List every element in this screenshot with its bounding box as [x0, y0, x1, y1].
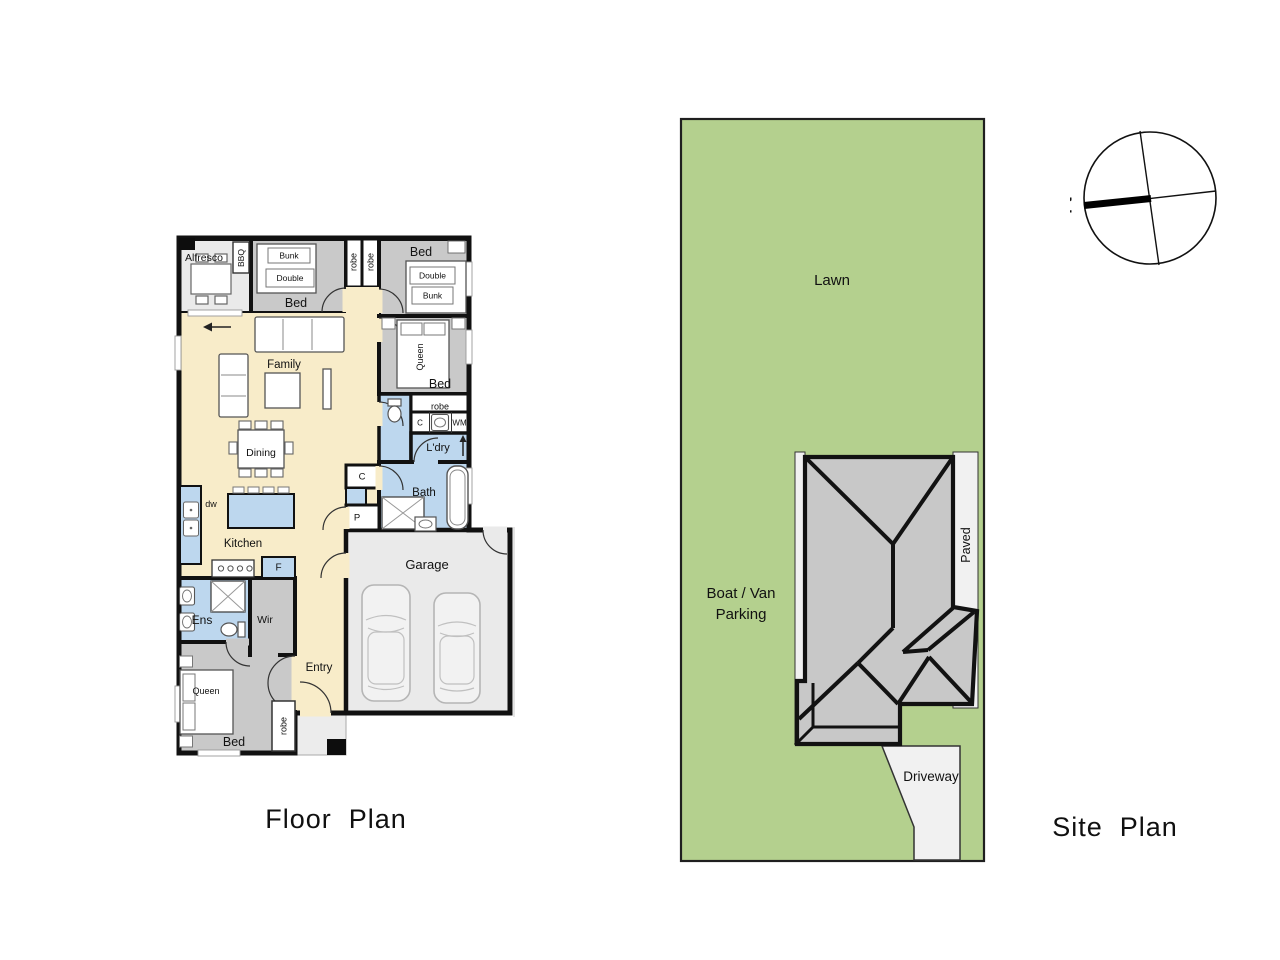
label-bunk: Bunk	[279, 251, 299, 261]
label-queen: Queen	[415, 343, 425, 370]
pantry	[346, 505, 379, 530]
label-bed3: Bed	[429, 377, 451, 391]
label-bed2: Bed	[285, 296, 307, 310]
label-fridge: F	[275, 563, 281, 574]
pillow	[183, 703, 195, 730]
label-hall-c: C	[359, 472, 366, 483]
label-kitchen: Kitchen	[224, 538, 262, 550]
label-bunk: Bunk	[423, 291, 443, 301]
house-footprint	[795, 457, 977, 745]
label-wm: WM	[452, 419, 467, 428]
toilet-tank	[388, 399, 401, 406]
bath-sink	[415, 517, 436, 531]
label-master-robe: robe	[279, 717, 289, 735]
label-bbq: BBQ	[236, 249, 246, 267]
hall-bench	[346, 488, 366, 505]
compass: N	[1070, 118, 1230, 278]
corner-post	[179, 238, 195, 250]
label-lawn: Lawn	[814, 272, 850, 289]
window	[448, 241, 465, 253]
label-parking: Parking	[716, 606, 767, 623]
nightstand	[452, 318, 465, 329]
toilet-tank	[238, 622, 245, 637]
label-robe-b: robe	[366, 253, 376, 271]
label-boat-van: Boat / Van	[707, 585, 776, 602]
label-master-bed: Bed	[223, 735, 245, 749]
label-double: Double	[277, 273, 304, 283]
pillow	[401, 323, 422, 335]
floor-plan-title: Floor Plan	[216, 804, 456, 835]
site-plan-title: Site Plan	[995, 812, 1235, 843]
sliding-door	[188, 310, 242, 316]
label-master-queen: Queen	[192, 686, 219, 696]
toilet	[221, 623, 237, 636]
window	[175, 336, 181, 370]
north-label: N	[1070, 195, 1077, 215]
car	[434, 593, 480, 703]
label-alfresco: Alfresco	[185, 252, 223, 264]
label-laundry: L'dry	[426, 442, 450, 454]
label-double: Double	[419, 271, 446, 281]
site-plan-drawing: Lawn Boat / Van Parking Paved Driveway	[670, 110, 1000, 870]
label-cupboard-c: C	[417, 419, 423, 428]
bed1-furniture	[406, 261, 466, 313]
label-bath: Bath	[412, 487, 436, 499]
sofa	[255, 317, 344, 352]
nightstand	[382, 318, 395, 329]
label-ensuite: Ens	[192, 613, 213, 627]
nightstand	[180, 656, 193, 667]
tv-unit	[323, 369, 331, 409]
label-robe3: robe	[431, 402, 449, 412]
label-garage: Garage	[405, 557, 448, 572]
toilet	[388, 406, 401, 422]
label-dining: Dining	[246, 447, 276, 459]
label-entry: Entry	[306, 662, 333, 674]
page-background: Alfresco BBQ Bunk Double Bed robe robe B…	[0, 0, 1280, 960]
label-bed1: Bed	[410, 245, 432, 259]
sofa	[219, 354, 248, 417]
kitchen-island	[228, 494, 294, 528]
nightstand	[180, 736, 193, 747]
label-paved: Paved	[959, 527, 973, 562]
house-outline	[797, 457, 977, 744]
window	[466, 262, 472, 296]
label-robe-a: robe	[349, 253, 359, 271]
floor-plan-drawing: Alfresco BBQ Bunk Double Bed robe robe B…	[168, 228, 528, 763]
entry-corridor	[295, 578, 346, 713]
coffee-table	[265, 373, 300, 408]
porch-post	[327, 739, 346, 755]
label-family: Family	[267, 359, 301, 371]
label-dw: dw	[205, 499, 217, 509]
label-driveway: Driveway	[903, 769, 959, 784]
label-pantry: P	[354, 513, 360, 524]
outdoor-table	[191, 264, 231, 294]
window	[198, 750, 240, 756]
label-wir: Wir	[257, 614, 273, 626]
window	[466, 330, 472, 364]
pillow	[424, 323, 445, 335]
